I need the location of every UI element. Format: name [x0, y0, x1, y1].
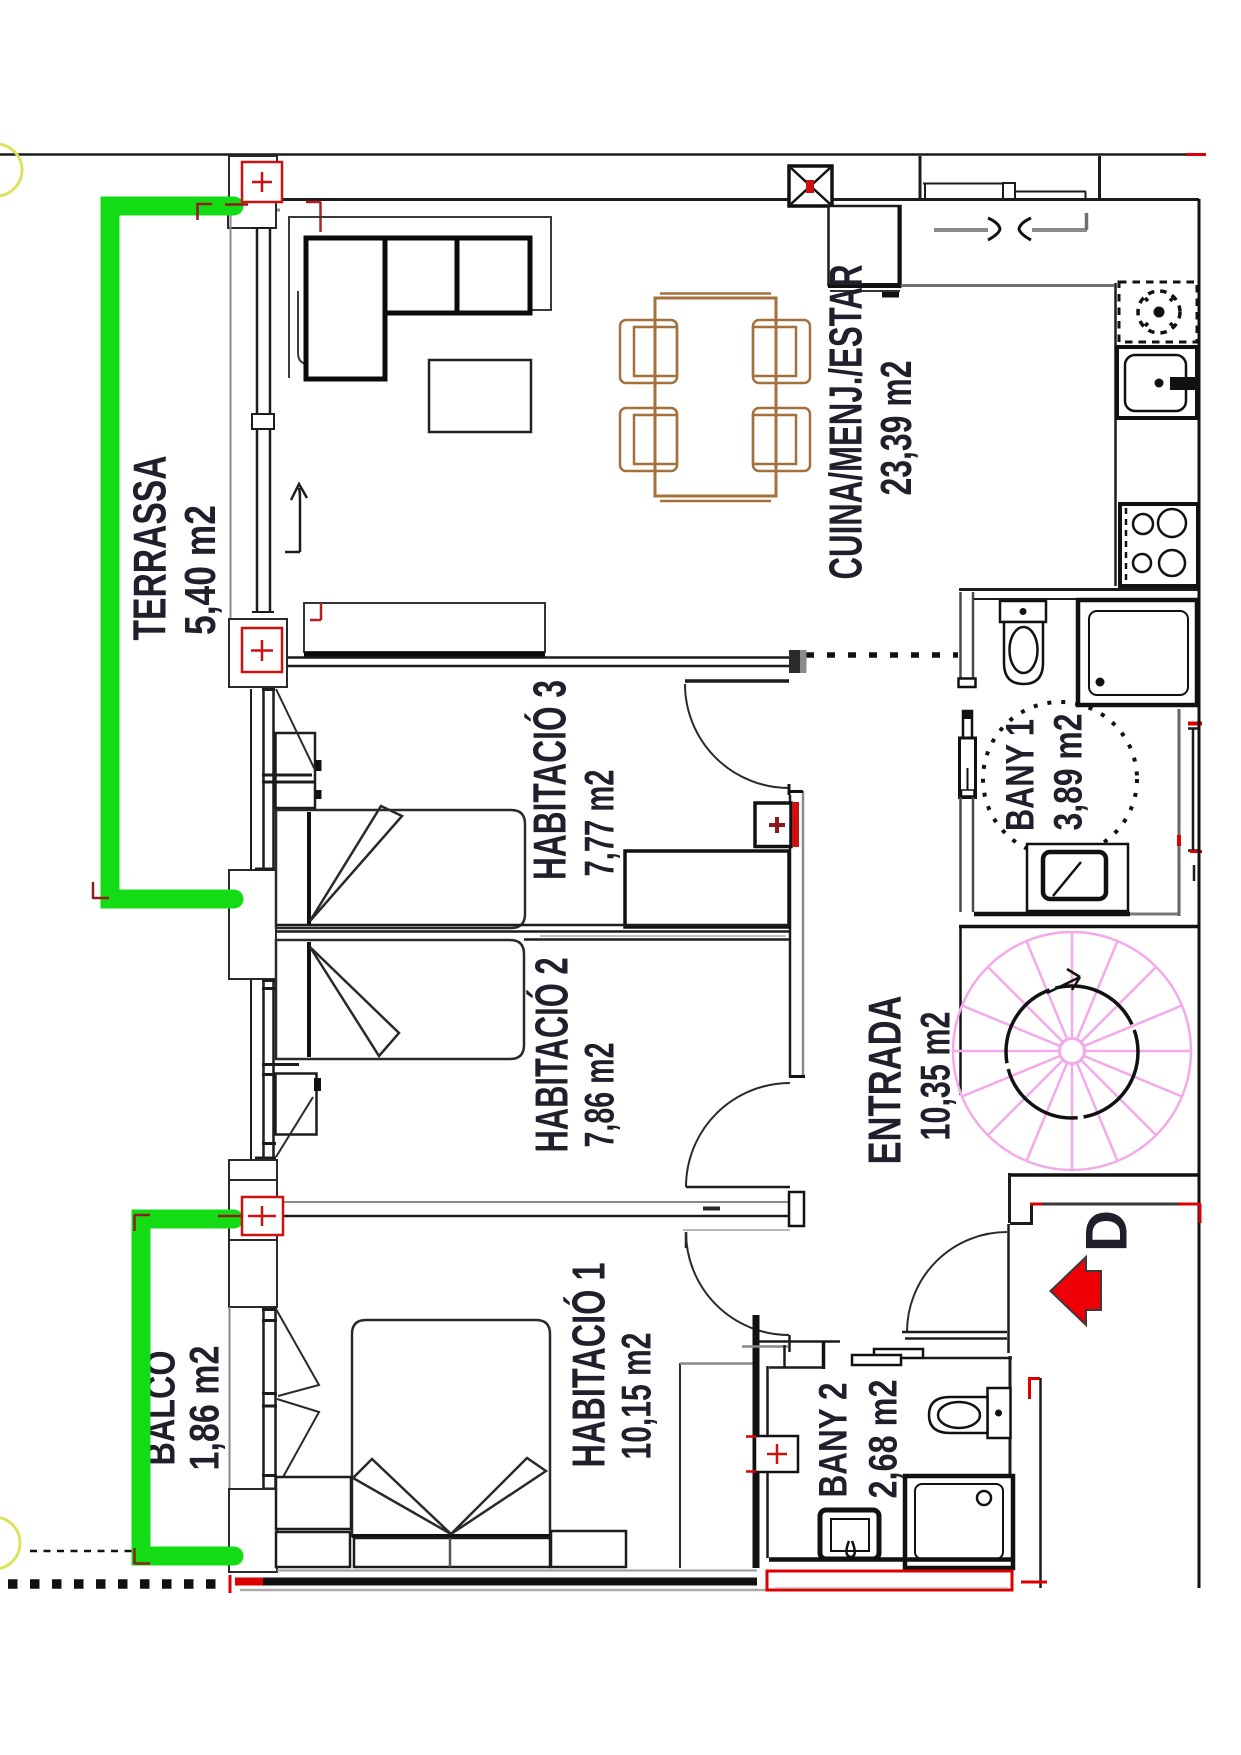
svg-text:7,86 m2: 7,86 m2	[575, 1043, 622, 1148]
svg-text:23,39 m2: 23,39 m2	[872, 361, 921, 496]
svg-text:10,35 m2: 10,35 m2	[911, 1012, 958, 1141]
svg-text:ENTRADA: ENTRADA	[859, 996, 911, 1165]
svg-text:1,86 m2: 1,86 m2	[180, 1346, 227, 1471]
svg-text:BANY 1: BANY 1	[999, 719, 1043, 831]
svg-text:HABITACIÓ 1: HABITACIÓ 1	[563, 1263, 615, 1468]
svg-text:CUINA/MENJ./ESTAR: CUINA/MENJ./ESTAR	[820, 265, 872, 580]
svg-text:TERRASSA: TERRASSA	[124, 456, 176, 641]
svg-text:10,15 m2: 10,15 m2	[612, 1333, 659, 1460]
svg-text:HABITACIÓ 2: HABITACIÓ 2	[526, 958, 578, 1153]
svg-text:D: D	[1075, 1210, 1140, 1252]
svg-text:2,68 m2: 2,68 m2	[862, 1380, 906, 1499]
svg-text:3,89 m2: 3,89 m2	[1047, 714, 1091, 831]
svg-text:7,77 m2: 7,77 m2	[575, 770, 622, 877]
svg-text:BANY 2: BANY 2	[812, 1383, 856, 1498]
svg-text:HABITACIÓ 3: HABITACIÓ 3	[524, 680, 576, 880]
svg-text:5,40 m2: 5,40 m2	[176, 505, 225, 635]
